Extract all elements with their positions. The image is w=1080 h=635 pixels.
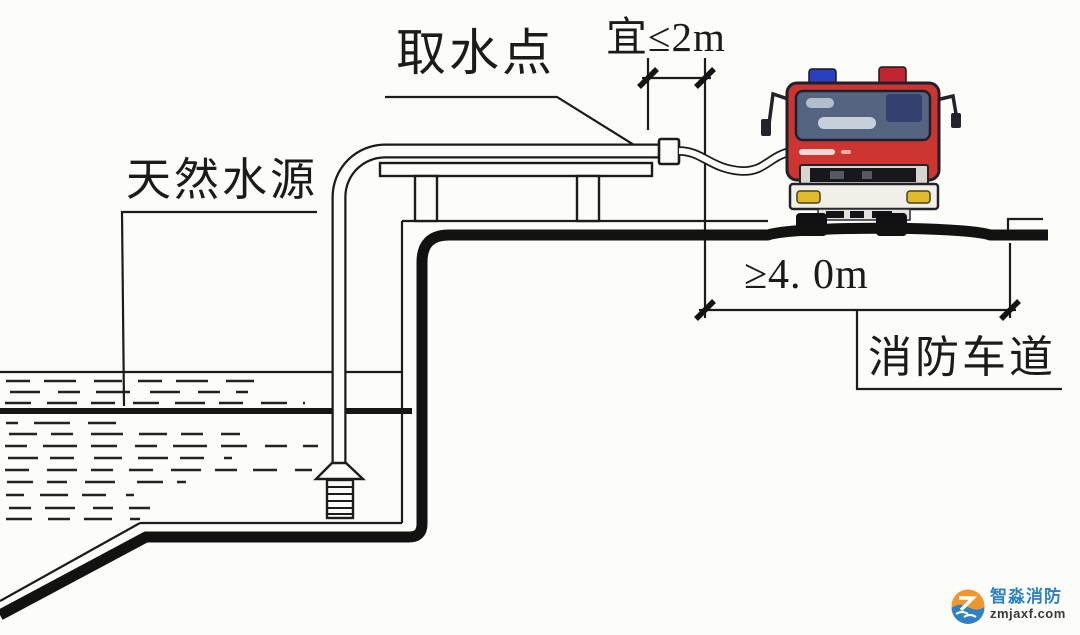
windshield-glare bbox=[806, 98, 834, 108]
embankment-slope-line bbox=[0, 523, 140, 601]
natural-water-source-label: 天然水源 bbox=[126, 158, 318, 203]
diagram-linework bbox=[0, 0, 1080, 635]
grille-slit bbox=[862, 171, 872, 179]
platform-column-left bbox=[415, 176, 437, 221]
license-plate bbox=[826, 211, 844, 218]
suction-pipe bbox=[339, 151, 663, 466]
left-mirror bbox=[761, 119, 771, 136]
front-decal bbox=[799, 149, 835, 155]
watermark-logo-icon bbox=[950, 588, 986, 624]
fire-water-source-diagram: 取水点 宜≤2m 天然水源 ≥4. 0m 消防车道 智淼消防 zmjaxf.co… bbox=[0, 0, 1080, 635]
front-decal bbox=[841, 150, 851, 154]
step-slot bbox=[850, 211, 864, 218]
intake-distance-dimension-text: 宜≤2m bbox=[606, 17, 726, 58]
intake-point-label: 取水点 bbox=[396, 28, 555, 78]
windshield-shadow bbox=[886, 94, 922, 122]
platform-column-right bbox=[577, 176, 599, 221]
water-source-leader bbox=[122, 212, 317, 406]
fire-truck bbox=[761, 67, 961, 236]
right-headlight bbox=[907, 191, 930, 203]
watermark: 智淼消防 zmjaxf.com bbox=[950, 588, 1066, 624]
right-mirror bbox=[951, 113, 961, 128]
platform-slab bbox=[380, 163, 652, 176]
water-ripples bbox=[5, 381, 318, 519]
left-headlight bbox=[797, 191, 820, 203]
watermark-site: zmjaxf.com bbox=[990, 607, 1066, 621]
watermark-brand: 智淼消防 bbox=[990, 588, 1066, 606]
intake-platform bbox=[380, 163, 652, 221]
lane-width-dimension-text: ≥4. 0m bbox=[744, 254, 869, 296]
fire-lane-label: 消防车道 bbox=[868, 336, 1056, 380]
ground-section-thick-line bbox=[0, 228, 1048, 615]
right-curb-step bbox=[1008, 219, 1043, 231]
hose-coupling bbox=[659, 139, 679, 164]
foot-strainer-icon bbox=[316, 463, 363, 518]
suction-hose bbox=[679, 151, 795, 171]
windshield-glare bbox=[818, 117, 876, 129]
grille-slit bbox=[830, 171, 844, 179]
